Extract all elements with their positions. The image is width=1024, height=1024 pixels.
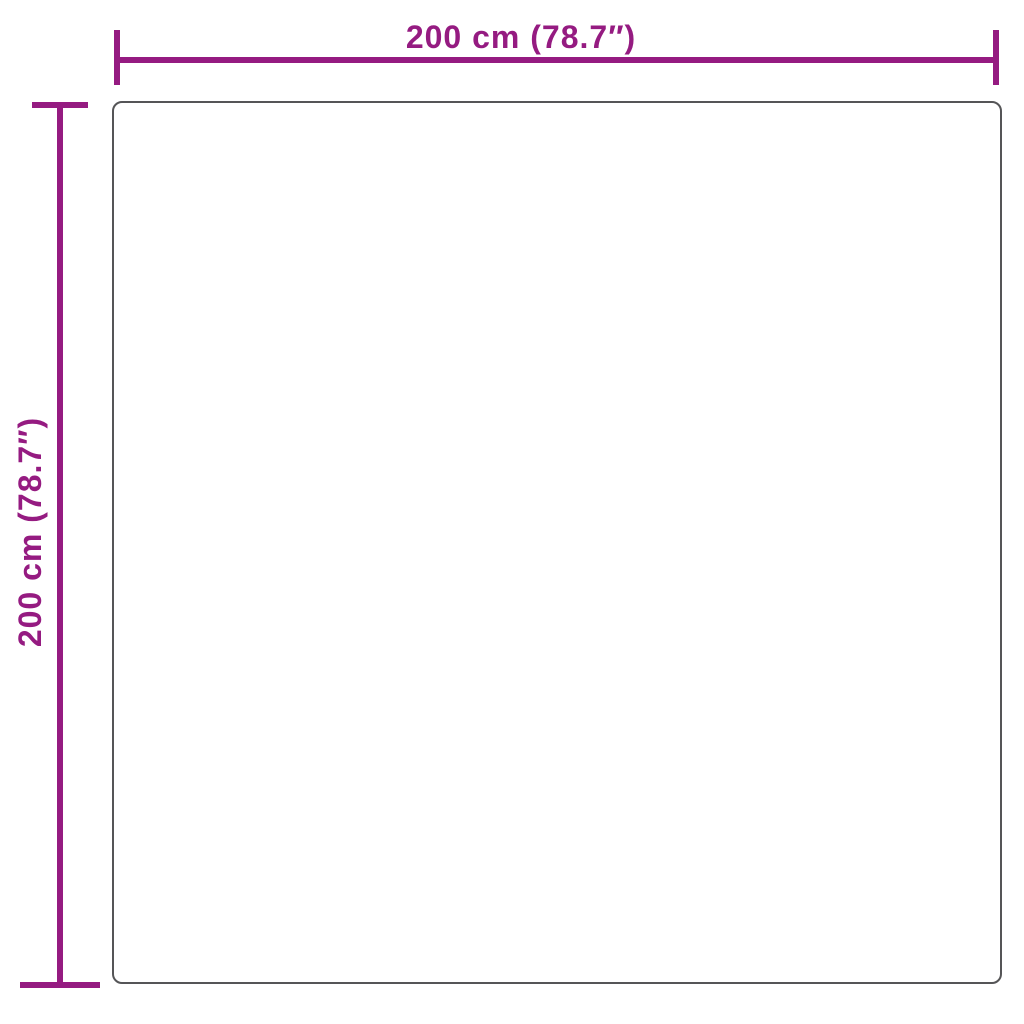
width-dimension-tick-left xyxy=(114,30,120,85)
width-dimension-label: 200 cm (78.7″) xyxy=(406,21,636,53)
height-dimension-label: 200 cm (78.7″) xyxy=(14,417,46,647)
height-dimension-line xyxy=(57,105,63,985)
product-outline xyxy=(112,101,1002,984)
width-dimension-tick-right xyxy=(993,30,999,85)
height-dimension-tick-bottom xyxy=(20,982,100,988)
height-dimension-tick-top xyxy=(32,102,88,108)
width-dimension-line xyxy=(117,57,996,63)
dimension-diagram: 200 cm (78.7″) 200 cm (78.7″) xyxy=(0,0,1024,1024)
